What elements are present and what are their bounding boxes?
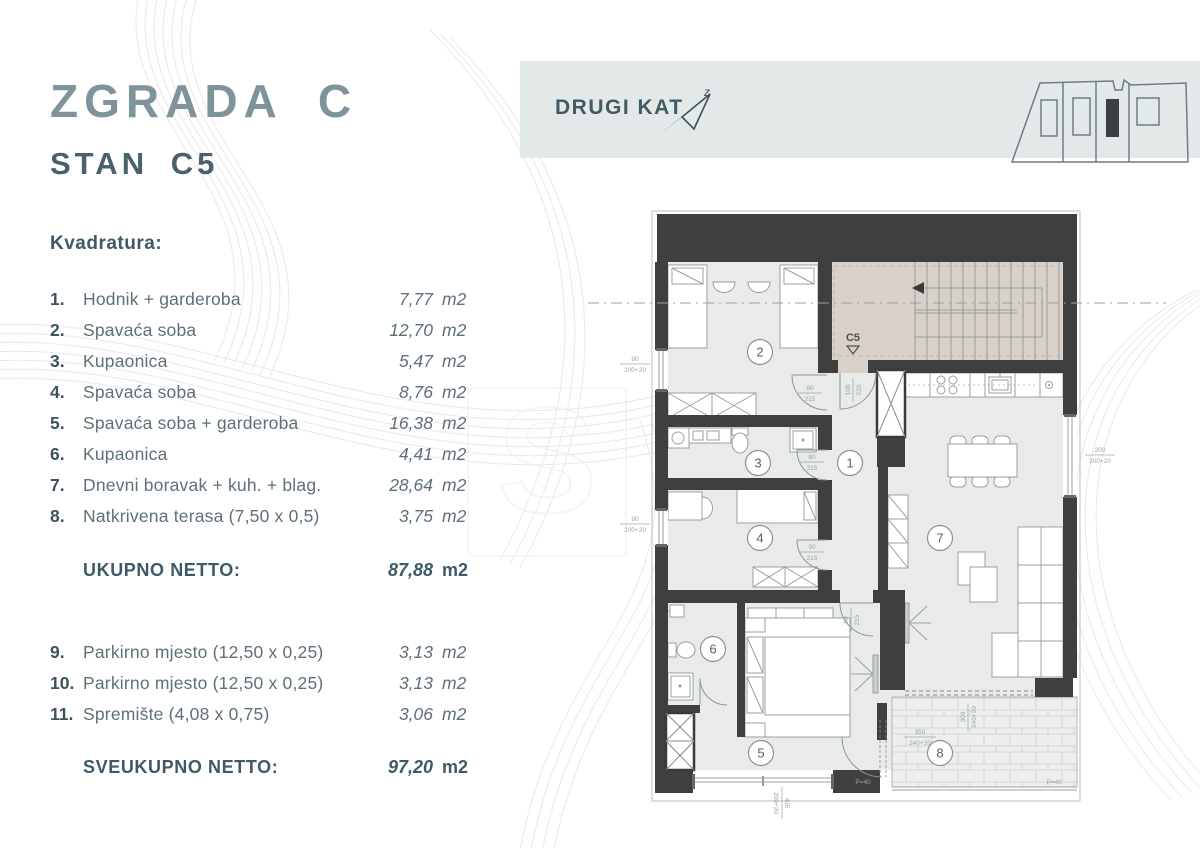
- row-label: Spavaća soba: [83, 382, 399, 403]
- room-marker: 4: [748, 526, 773, 551]
- svg-text:200+20: 200+20: [772, 792, 779, 814]
- room-marker: 7: [928, 526, 953, 551]
- row-unit: m2: [433, 351, 476, 372]
- row-number: 8.: [50, 506, 83, 527]
- row-unit: m2: [433, 444, 476, 465]
- row-value: 5,47: [399, 351, 433, 372]
- building-locator-icon: [1000, 74, 1190, 169]
- row-unit: m2: [433, 382, 476, 403]
- row-value: 8,76: [399, 382, 433, 403]
- row-unit: m2: [433, 320, 476, 341]
- room-marker: 2: [748, 340, 773, 365]
- total-row: SVEUKUPNO NETTO: 97,20 m2: [50, 752, 476, 783]
- total-unit: m2: [433, 757, 476, 778]
- svg-text:90: 90: [843, 616, 850, 624]
- row-unit: m2: [433, 413, 476, 434]
- svg-text:P=40: P=40: [1046, 779, 1062, 786]
- svg-text:200+20: 200+20: [624, 527, 646, 534]
- svg-text:8: 8: [936, 746, 943, 761]
- subtotal-label: UKUPNO NETTO:: [83, 560, 388, 581]
- svg-text:2: 2: [756, 345, 763, 360]
- row-value: 7,77: [399, 289, 433, 310]
- svg-text:240+20: 240+20: [909, 740, 931, 747]
- svg-text:215: 215: [805, 396, 816, 403]
- total-value: 97,20: [388, 757, 433, 778]
- row-number: 7.: [50, 475, 83, 496]
- unit-title: STAN C5: [50, 146, 218, 182]
- svg-text:200+20: 200+20: [624, 367, 646, 374]
- row-value: 3,13: [399, 642, 433, 663]
- area-row: 2. Spavaća soba 12,70 m2: [50, 315, 476, 346]
- svg-text:5: 5: [757, 746, 764, 761]
- row-number: 10.: [50, 673, 83, 694]
- svg-text:P=40: P=40: [855, 779, 871, 786]
- room-marker: 8: [928, 741, 953, 766]
- row-number: 2.: [50, 320, 83, 341]
- svg-text:240+20: 240+20: [971, 706, 978, 728]
- svg-text:7: 7: [936, 531, 943, 546]
- room-marker: 1: [838, 451, 863, 476]
- row-unit: m2: [433, 289, 476, 310]
- unit-location-marker: [1106, 99, 1119, 137]
- row-value: 16,38: [389, 413, 433, 434]
- entry-label: C5: [846, 332, 860, 344]
- row-value: 3,06: [399, 704, 433, 725]
- area-row: 7. Dnevni boravak + kuh. + blag. 28,64 m…: [50, 470, 476, 501]
- area-row: 4. Spavaća soba 8,76 m2: [50, 377, 476, 408]
- room-marker: 5: [749, 741, 774, 766]
- page: S DRUGI KAT z ZGRADA C STAN C5 Kvadratur…: [0, 0, 1200, 848]
- area-row: 8. Natkrivena terasa (7,50 x 0,5) 3,75 m…: [50, 501, 476, 532]
- svg-text:100: 100: [845, 384, 852, 395]
- area-list: 1. Hodnik + garderoba 7,77 m2 2. Spavaća…: [50, 284, 476, 532]
- area-row: 9. Parkirno mjesto (12,50 x 0,25) 3,13 m…: [50, 637, 476, 668]
- area-row: 10. Parkirno mjesto (12,50 x 0,25) 3,13 …: [50, 668, 476, 699]
- row-unit: m2: [433, 642, 476, 663]
- row-value: 4,41: [399, 444, 433, 465]
- svg-text:3: 3: [754, 456, 761, 471]
- row-label: Hodnik + garderoba: [83, 289, 399, 310]
- area-row: 6. Kupaonica 4,41 m2: [50, 439, 476, 470]
- area-list-heading: Kvadratura:: [50, 233, 162, 255]
- area-row: 1. Hodnik + garderoba 7,77 m2: [50, 284, 476, 315]
- svg-text:200+20: 200+20: [1089, 458, 1111, 465]
- row-label: Dnevni boravak + kuh. + blag.: [83, 475, 389, 496]
- row-label: Spremište (4,08 x 0,75): [83, 704, 399, 725]
- north-arrow-icon: z: [652, 84, 714, 142]
- svg-text:215: 215: [807, 465, 818, 472]
- row-unit: m2: [433, 506, 476, 527]
- svg-text:150: 150: [915, 729, 926, 736]
- svg-text:6: 6: [709, 642, 716, 657]
- room-marker: 6: [701, 637, 726, 662]
- subtotal-row: UKUPNO NETTO: 87,88 m2: [50, 555, 476, 586]
- svg-text:215: 215: [854, 614, 861, 625]
- svg-text:1: 1: [846, 456, 853, 471]
- row-number: 5.: [50, 413, 83, 434]
- svg-text:90: 90: [631, 356, 639, 363]
- row-number: 6.: [50, 444, 83, 465]
- row-label: Spavaća soba + garderoba: [83, 413, 389, 434]
- area-row: 11. Spremište (4,08 x 0,75) 3,06 m2: [50, 699, 476, 730]
- row-number: 3.: [50, 351, 83, 372]
- row-number: 9.: [50, 642, 83, 663]
- svg-text:300: 300: [960, 711, 967, 722]
- area-row: 3. Kupaonica 5,47 m2: [50, 346, 476, 377]
- svg-text:200: 200: [1095, 447, 1106, 454]
- room-marker: 3: [746, 451, 771, 476]
- page-title: ZGRADA C: [50, 74, 357, 128]
- row-value: 28,64: [389, 475, 433, 496]
- row-label: Parkirno mjesto (12,50 x 0,25): [83, 642, 399, 663]
- svg-text:90: 90: [808, 544, 816, 551]
- row-unit: m2: [433, 475, 476, 496]
- total-label: SVEUKUPNO NETTO:: [83, 757, 388, 778]
- svg-text:220: 220: [856, 384, 863, 395]
- row-label: Spavaća soba: [83, 320, 389, 341]
- stairwell: [830, 252, 1063, 360]
- svg-text:215: 215: [807, 555, 818, 562]
- svg-text:435: 435: [783, 798, 790, 809]
- subtotal-value: 87,88: [388, 560, 433, 581]
- row-label: Kupaonica: [83, 444, 399, 465]
- row-value: 12,70: [389, 320, 433, 341]
- svg-text:90: 90: [631, 516, 639, 523]
- row-unit: m2: [433, 704, 476, 725]
- floor-plan: C5 90 215 80 215 90 215 100 220 90 215: [560, 200, 1200, 830]
- row-unit: m2: [433, 673, 476, 694]
- subtotal-unit: m2: [433, 560, 476, 581]
- row-number: 4.: [50, 382, 83, 403]
- row-label: Kupaonica: [83, 351, 399, 372]
- row-value: 3,75: [399, 506, 433, 527]
- row-value: 3,13: [399, 673, 433, 694]
- row-label: Parkirno mjesto (12,50 x 0,25): [83, 673, 399, 694]
- row-label: Natkrivena terasa (7,50 x 0,5): [83, 506, 399, 527]
- svg-text:4: 4: [756, 531, 763, 546]
- row-number: 1.: [50, 289, 83, 310]
- row-number: 11.: [50, 704, 83, 725]
- parking-list: 9. Parkirno mjesto (12,50 x 0,25) 3,13 m…: [50, 637, 476, 730]
- north-mark-letter: z: [703, 85, 710, 99]
- svg-text:90: 90: [806, 385, 814, 392]
- area-row: 5. Spavaća soba + garderoba 16,38 m2: [50, 408, 476, 439]
- svg-text:80: 80: [808, 454, 816, 461]
